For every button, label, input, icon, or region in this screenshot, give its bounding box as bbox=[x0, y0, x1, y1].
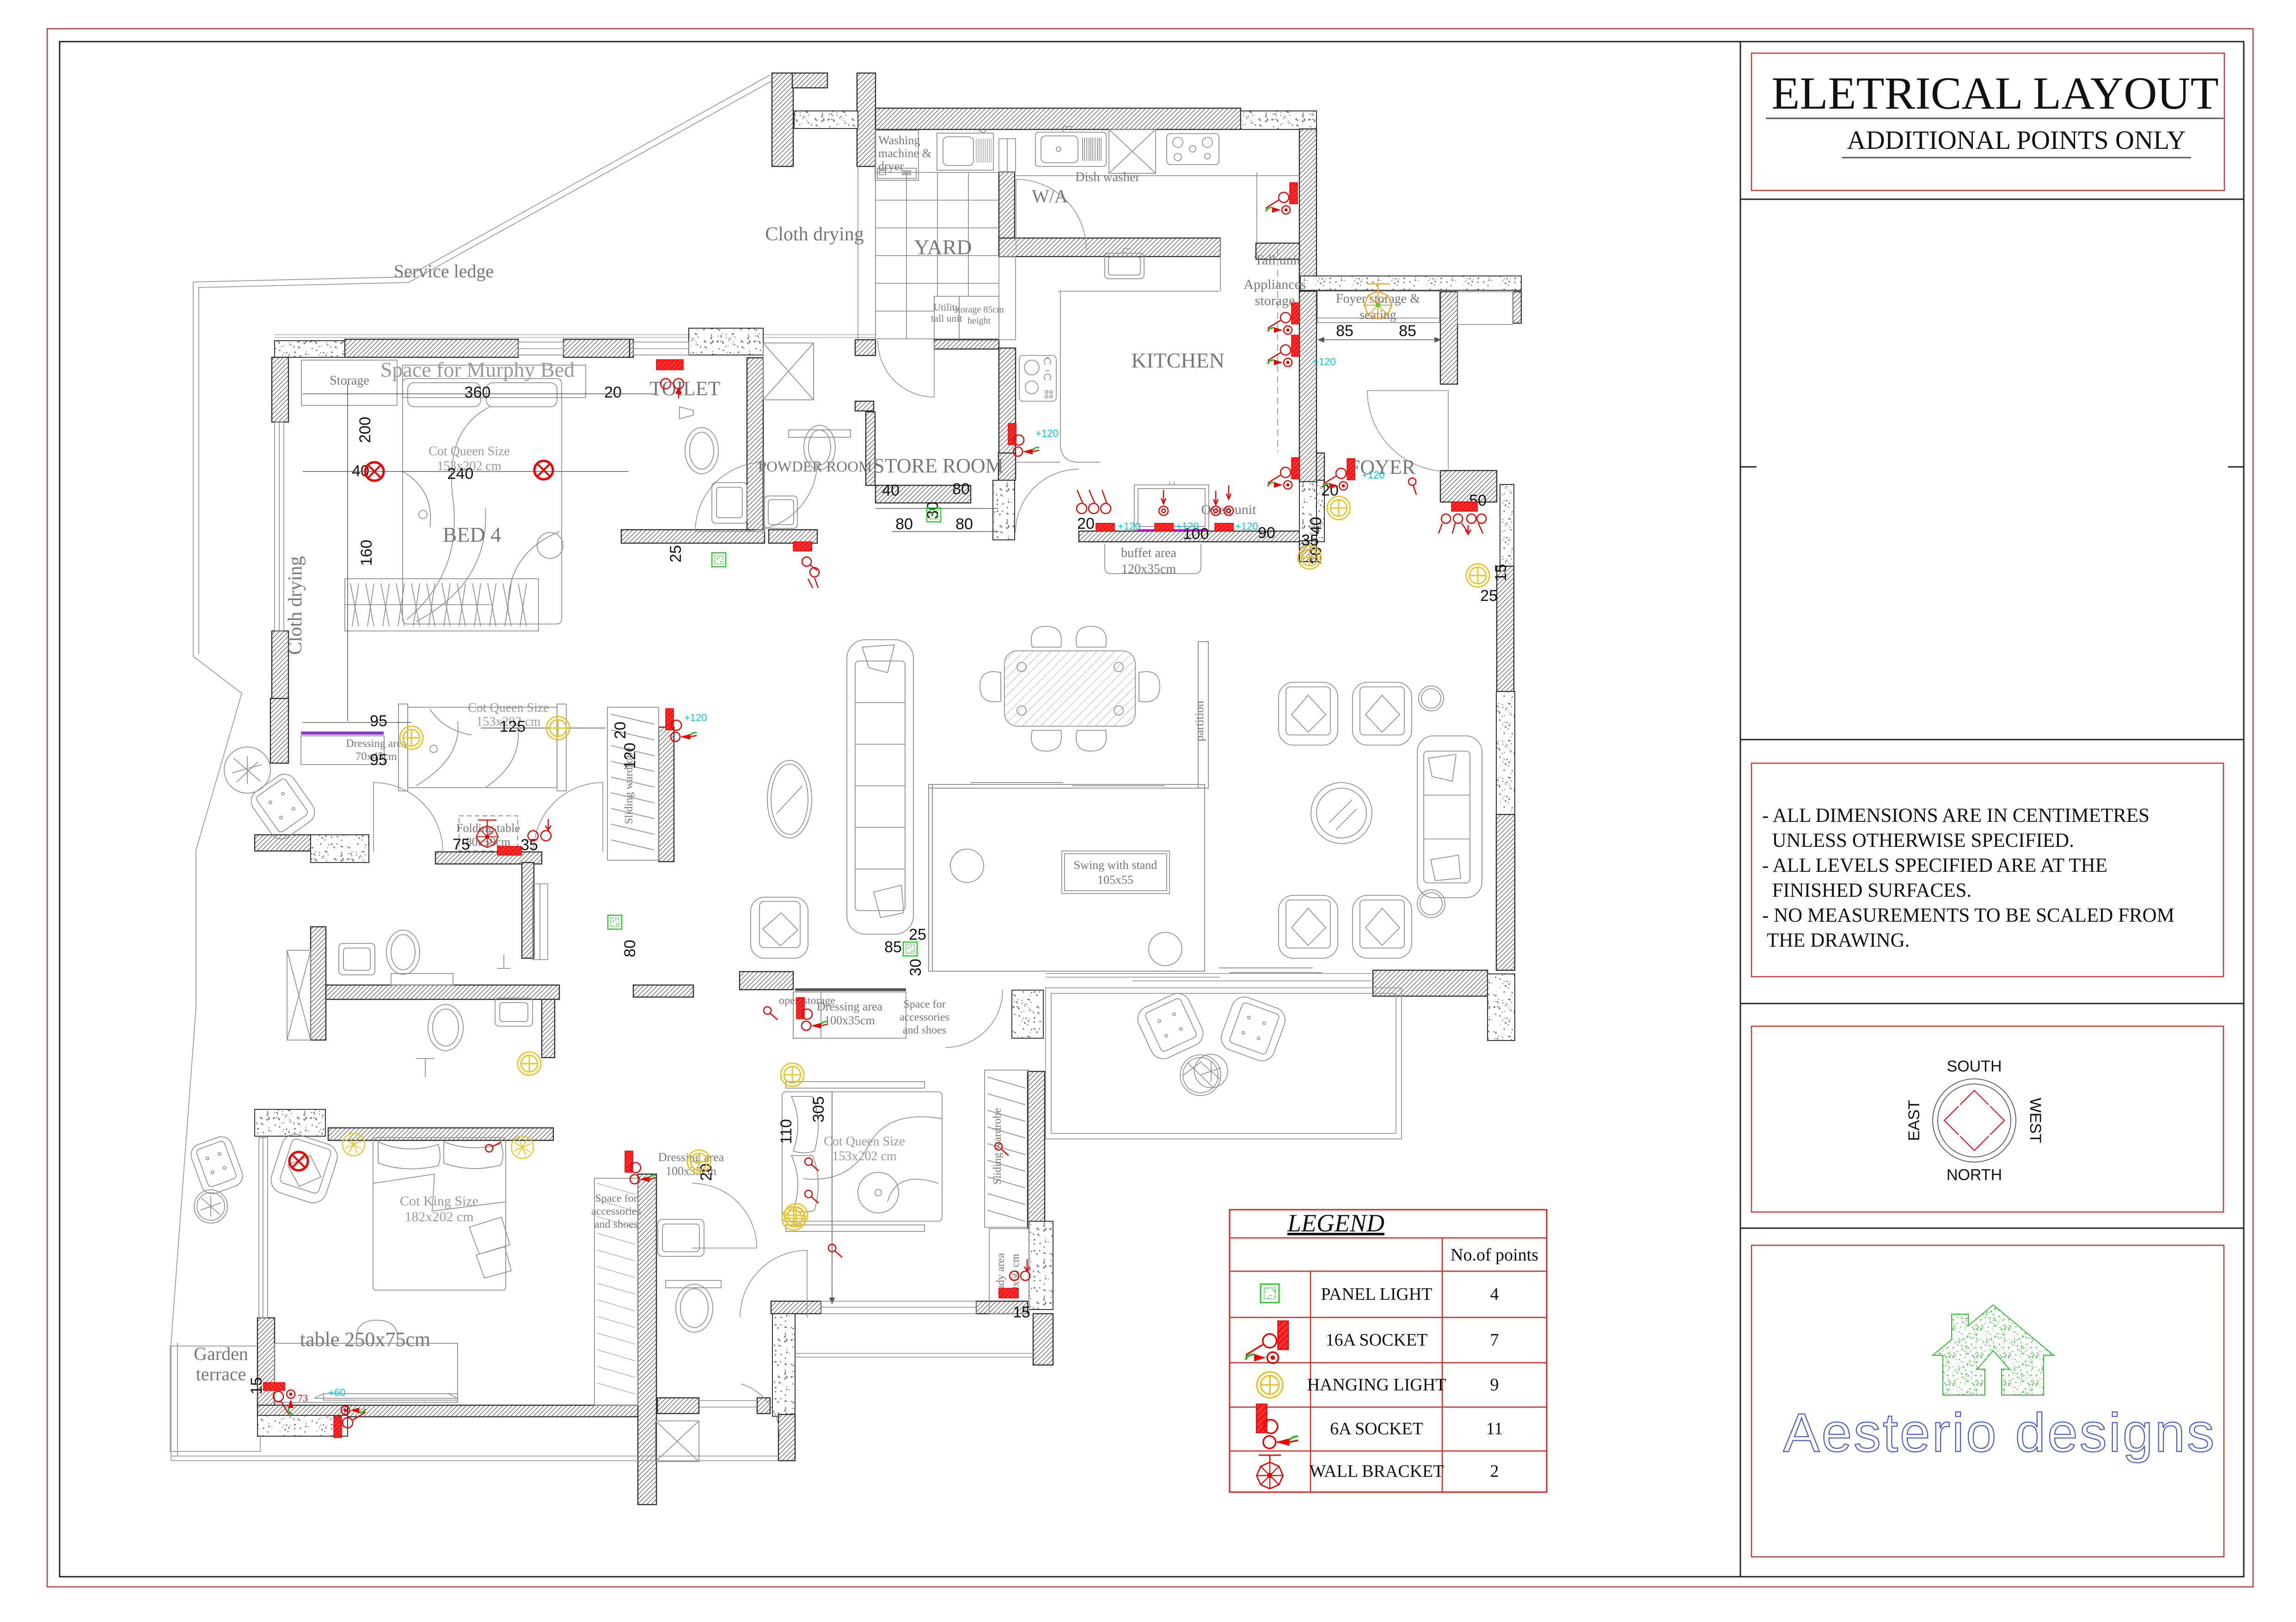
svg-text:20: 20 bbox=[604, 384, 622, 401]
svg-text:100x35cm: 100x35cm bbox=[824, 1014, 875, 1027]
svg-text:+120: +120 bbox=[1118, 520, 1141, 532]
svg-text:height: height bbox=[967, 316, 991, 326]
svg-text:storage 85cm: storage 85cm bbox=[954, 305, 1004, 315]
svg-text:73: 73 bbox=[298, 1392, 308, 1404]
svg-text:accessories: accessories bbox=[900, 1011, 949, 1023]
svg-text:STORE ROOM: STORE ROOM bbox=[873, 454, 1004, 477]
svg-text:No.of points: No.of points bbox=[1451, 1245, 1538, 1265]
svg-text:Garden: Garden bbox=[194, 1343, 248, 1364]
svg-text:95: 95 bbox=[370, 712, 387, 730]
svg-text:HANGING LIGHT: HANGING LIGHT bbox=[1307, 1375, 1446, 1395]
svg-text:15: 15 bbox=[248, 1377, 265, 1395]
svg-text:16A SOCKET: 16A SOCKET bbox=[1326, 1330, 1428, 1350]
svg-text:153x202 cm: 153x202 cm bbox=[832, 1149, 896, 1163]
svg-text:85: 85 bbox=[1399, 322, 1416, 340]
svg-text:ADDITIONAL POINTS ONLY: ADDITIONAL POINTS ONLY bbox=[1847, 126, 2186, 155]
svg-text:305: 305 bbox=[810, 1096, 827, 1123]
svg-text:+60: +60 bbox=[328, 1387, 345, 1398]
svg-text:Cot King Size: Cot King Size bbox=[400, 1194, 478, 1209]
svg-text:2: 2 bbox=[1490, 1462, 1499, 1481]
svg-text:7: 7 bbox=[1490, 1330, 1499, 1350]
svg-text:Space for Murphy Bed: Space for Murphy Bed bbox=[380, 358, 575, 381]
svg-text:182x202 cm: 182x202 cm bbox=[404, 1209, 473, 1224]
svg-text:and shoes: and shoes bbox=[903, 1024, 946, 1036]
svg-text:200: 200 bbox=[356, 417, 374, 443]
svg-text:ELETRICAL LAYOUT: ELETRICAL LAYOUT bbox=[1771, 67, 2218, 119]
svg-text:accessories: accessories bbox=[591, 1206, 641, 1218]
svg-text:Storage: Storage bbox=[330, 373, 369, 388]
svg-text:SOUTH: SOUTH bbox=[1947, 1058, 2002, 1075]
svg-text:and shoes: and shoes bbox=[594, 1218, 638, 1230]
svg-text:UNLESS OTHERWISE SPECIFIED.: UNLESS OTHERWISE SPECIFIED. bbox=[1762, 830, 2074, 851]
svg-text:120x35cm: 120x35cm bbox=[1121, 562, 1176, 576]
svg-text:+120: +120 bbox=[1176, 520, 1199, 532]
svg-text:NORTH: NORTH bbox=[1947, 1166, 2002, 1184]
svg-text:LEGEND: LEGEND bbox=[1287, 1209, 1384, 1237]
svg-text:buffet area: buffet area bbox=[1121, 546, 1177, 560]
svg-text:- NO MEASUREMENTS TO BE SCALED: - NO MEASUREMENTS TO BE SCALED FROM bbox=[1762, 905, 2174, 926]
svg-text:Space for: Space for bbox=[903, 998, 945, 1010]
svg-text:+120: +120 bbox=[1313, 356, 1336, 367]
svg-text:11: 11 bbox=[1486, 1419, 1503, 1438]
svg-text:Appliances: Appliances bbox=[1244, 277, 1306, 292]
svg-text:Folding table: Folding table bbox=[456, 821, 520, 835]
svg-text:85: 85 bbox=[884, 938, 902, 956]
svg-text:80: 80 bbox=[895, 515, 913, 533]
svg-text:Aesterio designs: Aesterio designs bbox=[1783, 1402, 2216, 1463]
svg-text:POWDER ROOM: POWDER ROOM bbox=[758, 459, 872, 475]
svg-text:125: 125 bbox=[500, 718, 526, 735]
svg-text:storage: storage bbox=[1255, 293, 1295, 308]
svg-text:Tall unit: Tall unit bbox=[1255, 252, 1301, 268]
svg-text:160: 160 bbox=[358, 540, 375, 566]
svg-text:BED 4: BED 4 bbox=[443, 523, 502, 546]
svg-text:Washing: Washing bbox=[878, 134, 920, 147]
svg-text:+120: +120 bbox=[1235, 520, 1258, 532]
svg-text:240: 240 bbox=[447, 465, 474, 483]
svg-text:Dressing area: Dressing area bbox=[346, 738, 407, 750]
svg-text:40: 40 bbox=[1307, 517, 1325, 534]
svg-text:KITCHEN: KITCHEN bbox=[1131, 349, 1225, 372]
svg-text:6A SOCKET: 6A SOCKET bbox=[1330, 1419, 1423, 1438]
svg-text:120: 120 bbox=[621, 743, 639, 769]
svg-text:YARD: YARD bbox=[914, 235, 972, 259]
svg-text:WEST: WEST bbox=[2027, 1098, 2044, 1143]
svg-text:80: 80 bbox=[952, 480, 970, 498]
svg-text:20: 20 bbox=[612, 722, 629, 739]
svg-text:Space for: Space for bbox=[595, 1193, 637, 1205]
svg-text:15: 15 bbox=[1013, 1304, 1030, 1321]
svg-text:Service ledge: Service ledge bbox=[394, 261, 494, 282]
svg-text:terrace: terrace bbox=[196, 1364, 246, 1384]
svg-text:75: 75 bbox=[453, 836, 470, 853]
svg-text:95: 95 bbox=[370, 751, 387, 769]
svg-text:PANEL LIGHT: PANEL LIGHT bbox=[1321, 1285, 1432, 1304]
svg-text:machine &: machine & bbox=[878, 147, 931, 160]
svg-text:25: 25 bbox=[1480, 587, 1498, 605]
svg-text:table 250x75cm: table 250x75cm bbox=[300, 1328, 430, 1351]
svg-text:open storage: open storage bbox=[779, 995, 835, 1007]
svg-text:80: 80 bbox=[621, 940, 639, 957]
svg-text:Cot Queen Size: Cot Queen Size bbox=[824, 1134, 905, 1149]
svg-text:Swing with stand: Swing with stand bbox=[1074, 858, 1157, 872]
svg-text:90: 90 bbox=[1258, 524, 1275, 542]
svg-text:25: 25 bbox=[667, 545, 685, 563]
svg-text:Cloth drying: Cloth drying bbox=[765, 224, 864, 245]
svg-text:110: 110 bbox=[778, 1119, 795, 1144]
svg-text:Cloth drying: Cloth drying bbox=[285, 556, 306, 655]
svg-text:105x55: 105x55 bbox=[1097, 873, 1133, 887]
svg-text:EAST: EAST bbox=[1905, 1100, 1923, 1141]
svg-text:Dish washer: Dish washer bbox=[1075, 170, 1140, 184]
svg-text:partition: partition bbox=[1193, 701, 1206, 741]
svg-text:+120: +120 bbox=[1362, 469, 1385, 481]
svg-text:30: 30 bbox=[907, 959, 925, 976]
svg-text:dryer: dryer bbox=[878, 159, 904, 173]
svg-text:85: 85 bbox=[1336, 322, 1353, 340]
svg-text:15: 15 bbox=[1492, 564, 1510, 581]
svg-text:+120: +120 bbox=[684, 712, 707, 723]
svg-text:40: 40 bbox=[882, 482, 900, 499]
svg-text:25: 25 bbox=[909, 926, 926, 943]
svg-text:20: 20 bbox=[1077, 515, 1095, 533]
svg-text:80: 80 bbox=[955, 515, 973, 533]
svg-text:TOILET: TOILET bbox=[649, 377, 720, 400]
svg-text:4: 4 bbox=[1490, 1285, 1499, 1304]
svg-text:- ALL DIMENSIONS ARE IN CENTIM: - ALL DIMENSIONS ARE IN CENTIMETRES bbox=[1762, 805, 2149, 826]
svg-text:Cot Queen Size: Cot Queen Size bbox=[429, 444, 510, 459]
svg-text:+120: +120 bbox=[1035, 428, 1059, 439]
svg-text:- ALL LEVELS SPECIFIED ARE AT: - ALL LEVELS SPECIFIED ARE AT THE bbox=[1762, 855, 2107, 876]
svg-text:WALL BRACKET: WALL BRACKET bbox=[1310, 1462, 1444, 1481]
svg-text:9: 9 bbox=[1490, 1375, 1499, 1395]
svg-text:Cot Queen Size: Cot Queen Size bbox=[468, 701, 549, 715]
svg-text:W/A: W/A bbox=[1032, 186, 1068, 207]
svg-text:360: 360 bbox=[465, 384, 491, 401]
svg-text:FINISHED SURFACES.: FINISHED SURFACES. bbox=[1762, 880, 1971, 901]
svg-text:THE DRAWING.: THE DRAWING. bbox=[1762, 930, 1910, 951]
